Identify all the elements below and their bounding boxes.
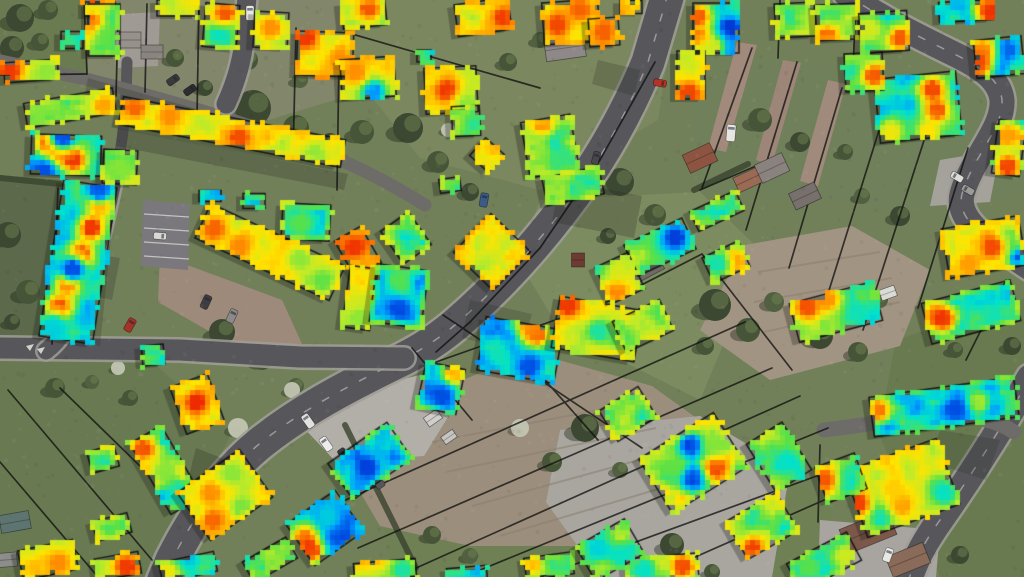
thermal-heatmap-overlay-layer bbox=[0, 0, 1024, 577]
aerial-thermal-survey-map[interactable] bbox=[0, 0, 1024, 577]
